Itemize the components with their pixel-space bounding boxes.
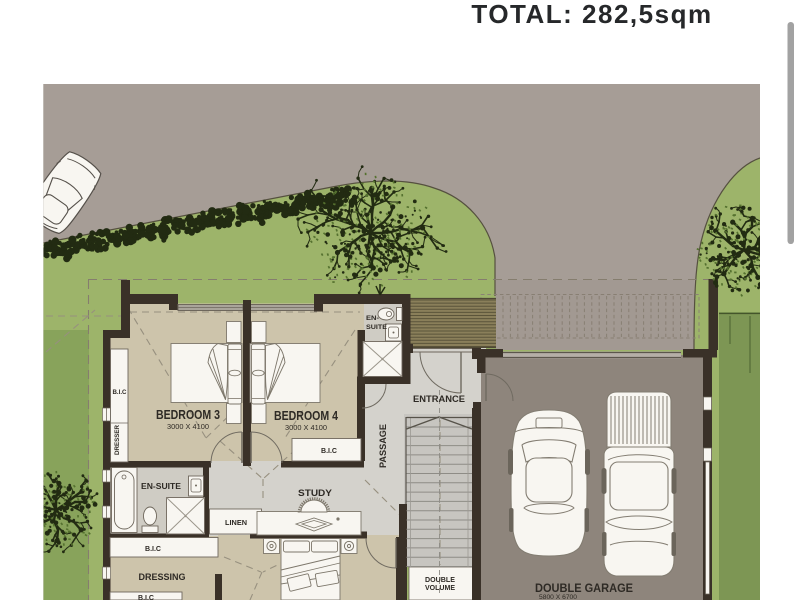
svg-text:VOLUME: VOLUME <box>425 585 455 592</box>
svg-text:3000 X 4100: 3000 X 4100 <box>285 423 327 432</box>
svg-text:EN-: EN- <box>366 315 379 322</box>
svg-text:B.I.C: B.I.C <box>321 448 337 455</box>
svg-text:DRESSER: DRESSER <box>114 425 121 455</box>
svg-text:TOTAL: 282,5sqm: TOTAL: 282,5sqm <box>471 0 712 29</box>
svg-text:SUITE: SUITE <box>366 324 387 331</box>
svg-text:BEDROOM 3: BEDROOM 3 <box>156 408 220 422</box>
svg-text:EN-SUITE: EN-SUITE <box>141 481 181 491</box>
svg-text:PASSAGE: PASSAGE <box>378 424 388 468</box>
svg-text:BEDROOM 4: BEDROOM 4 <box>274 409 338 423</box>
svg-text:B.I.C: B.I.C <box>145 546 161 553</box>
svg-text:3000 X 4100: 3000 X 4100 <box>167 422 209 431</box>
svg-text:5800 X 6700: 5800 X 6700 <box>539 594 577 600</box>
svg-text:STUDY: STUDY <box>298 488 333 499</box>
svg-text:DOUBLE: DOUBLE <box>425 577 455 584</box>
svg-text:LINEN: LINEN <box>225 518 247 527</box>
svg-text:B.I.C: B.I.C <box>138 595 154 600</box>
svg-text:DRESSING: DRESSING <box>139 572 186 582</box>
svg-text:ENTRANCE: ENTRANCE <box>413 394 465 404</box>
svg-text:B.I.C: B.I.C <box>113 389 127 396</box>
